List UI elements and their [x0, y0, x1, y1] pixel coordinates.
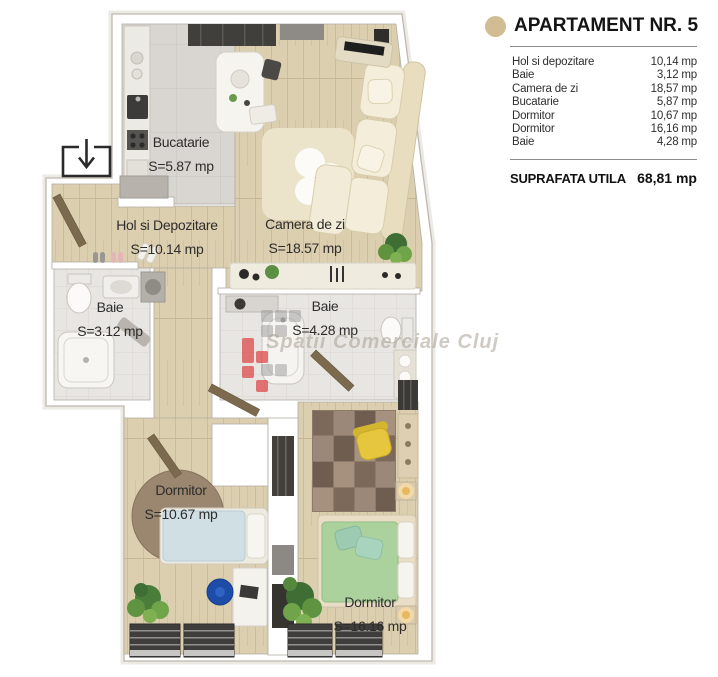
room-row: Hol si depozitare 10,14 mp	[512, 56, 697, 69]
wardrobe-dark-1	[272, 436, 294, 496]
hall-cabinet	[120, 176, 168, 198]
room-label-dormitor-1: Dormitor S=10.67 mp	[145, 478, 218, 526]
total-area-row: SUPRAFATA UTILA 68,81 mp	[510, 170, 697, 186]
apartment-bullet-icon	[485, 16, 506, 37]
room-row-name: Baie	[512, 69, 534, 82]
room-area: S=3.12 mp	[77, 319, 142, 343]
pillow-white-1	[398, 522, 414, 558]
room-name: Bucatarie	[148, 130, 213, 154]
room-list: Hol si depozitare 10,14 mp Baie 3,12 mp …	[512, 56, 697, 150]
room-row-name: Hol si depozitare	[512, 56, 594, 69]
room-row-name: Dormitor	[512, 123, 555, 136]
room-name: Baie	[292, 294, 357, 318]
wardrobe-gray	[272, 545, 294, 575]
room-name: Hol si Depozitare	[116, 213, 218, 237]
room-name: Dormitor	[145, 478, 218, 502]
room-name: Baie	[77, 295, 142, 319]
room-row: Baie 3,12 mp	[512, 69, 697, 82]
room-row: Camera de zi 18,57 mp	[512, 83, 697, 96]
room-label-bucatarie: Bucatarie S=5.87 mp	[148, 130, 213, 178]
room-label-camera-de-zi: Camera de zi S=18.57 mp	[265, 212, 345, 260]
room-name: Camera de zi	[265, 212, 345, 236]
window-panel	[288, 624, 332, 657]
dining-chair-light	[249, 104, 277, 124]
total-area-value: 68,81 mp	[637, 170, 697, 186]
room-area: S=5.87 mp	[148, 154, 213, 178]
room-name: Dormitor	[334, 590, 407, 614]
plant-console	[265, 265, 279, 279]
entrance-arrow-icon	[63, 139, 110, 176]
room-row-name: Dormitor	[512, 110, 555, 123]
room-label-baie-2: Baie S=4.28 mp	[292, 294, 357, 342]
divider	[510, 159, 697, 160]
sideboard-top	[280, 24, 324, 40]
room-area: S=16.16 mp	[334, 614, 407, 638]
room-area: S=18.57 mp	[265, 236, 345, 260]
room-row-area: 4,28 mp	[657, 136, 697, 149]
room-row-area: 5,87 mp	[657, 96, 697, 109]
room-row-area: 10,67 mp	[651, 110, 697, 123]
room-area: S=10.14 mp	[116, 237, 218, 261]
window-panel	[130, 624, 180, 657]
room-row-area: 16,16 mp	[651, 123, 697, 136]
room-row: Dormitor 10,67 mp	[512, 110, 697, 123]
laptop	[239, 585, 258, 599]
apartment-title: APARTAMENT NR. 5	[514, 15, 698, 37]
room-label-hol: Hol si Depozitare S=10.14 mp	[116, 213, 218, 261]
room-label-dormitor-2: Dormitor S=16.16 mp	[334, 590, 407, 638]
room-label-baie-1: Baie S=3.12 mp	[77, 295, 142, 343]
wardrobe-bedroom2	[398, 380, 418, 410]
apartment-summary-panel: APARTAMENT NR. 5 Hol si depozitare 10,14…	[485, 0, 697, 186]
room-row-area: 18,57 mp	[651, 83, 697, 96]
apartment-plan-page: Spatii Comerciale Cluj Bucatarie S=5.87 …	[0, 0, 718, 677]
media-console	[230, 263, 416, 289]
room-row-name: Bucatarie	[512, 96, 559, 109]
room-row-name: Baie	[512, 136, 534, 149]
room-row-area: 3,12 mp	[657, 69, 697, 82]
panel-header: APARTAMENT NR. 5	[485, 15, 697, 37]
room-row: Dormitor 16,16 mp	[512, 123, 697, 136]
room-area: S=4.28 mp	[292, 318, 357, 342]
single-bed-pillow	[247, 514, 265, 558]
room-row: Bucatarie 5,87 mp	[512, 96, 697, 109]
divider	[510, 46, 697, 47]
room-row-name: Camera de zi	[512, 83, 578, 96]
room-area: S=10.67 mp	[145, 502, 218, 526]
kitchen-stove	[127, 130, 148, 150]
window-panel	[184, 624, 234, 657]
room-row: Baie 4,28 mp	[512, 136, 697, 149]
room-row-area: 10,14 mp	[651, 56, 697, 69]
total-area-label: SUPRAFATA UTILA	[510, 171, 626, 186]
vanity-2	[226, 296, 278, 312]
